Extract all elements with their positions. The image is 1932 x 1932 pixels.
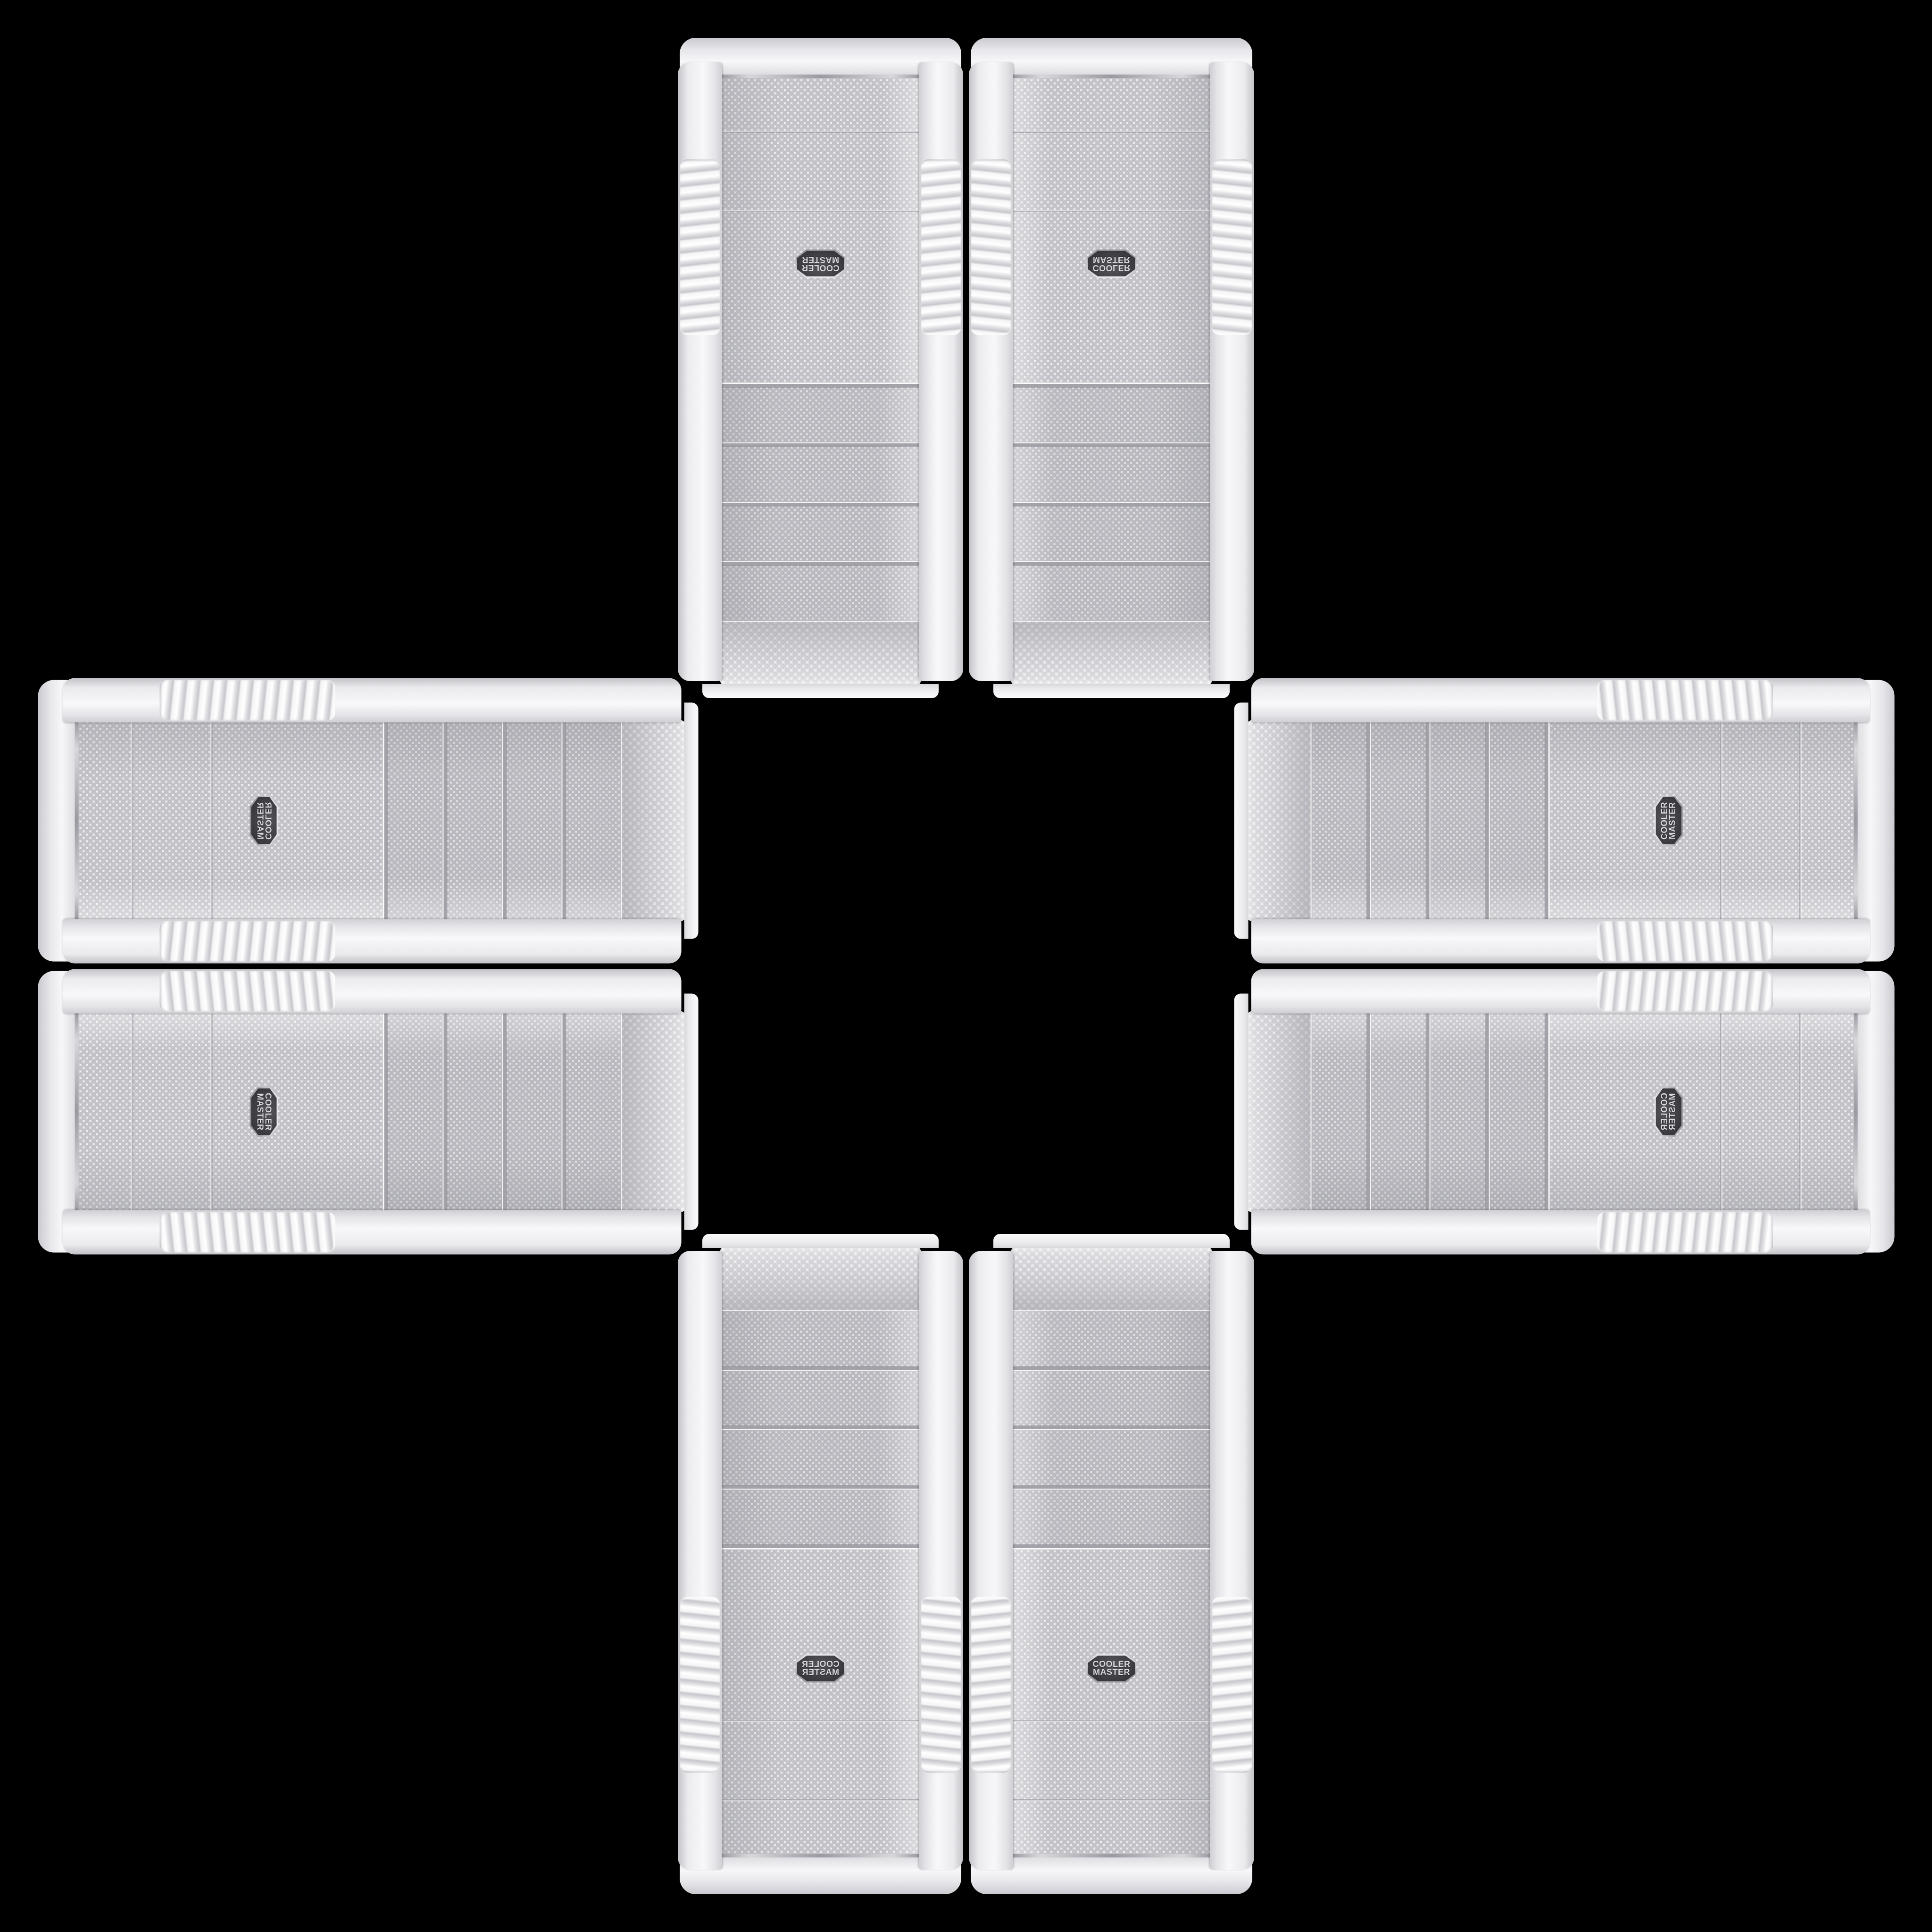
chrome-trim-bottom [1000,74,1223,78]
mesh-seam [1720,1008,1722,1215]
mesh-seam [717,1720,924,1722]
mesh-seam [131,1008,133,1215]
brand-line-1: COOLER [1660,802,1668,840]
drive-bay-cover [387,717,443,924]
grip-ribs [1597,971,1773,1011]
side-rail-right [1251,678,1870,722]
mesh-seam [717,131,924,133]
front-panel: COOLER MASTER [1008,1310,1215,1857]
drive-bay-cover [1429,1008,1486,1215]
mesh-seam [1008,131,1215,133]
front-panel: COOLER MASTER [717,75,924,622]
grip-ribs [1212,159,1252,335]
mesh-seam [1799,1008,1801,1215]
cooler-master-badge: COOLER MASTER [1654,796,1682,846]
brand-line-2: MASTER [1093,1668,1130,1676]
side-rail-right [1251,1210,1870,1254]
side-rail-left [62,969,681,1013]
grip-ribs [1597,1212,1773,1252]
drive-bay-cover [565,717,622,924]
brand-line-1: COOLER [264,802,272,840]
side-rail-right [678,1251,722,1870]
mesh-seam [1008,210,1215,212]
drive-bay-cover [1370,1008,1426,1215]
drive-bay-cover [1370,717,1426,924]
case-top-right: COOLER MASTER [969,38,1254,698]
case-bottom-left: COOLER MASTER [678,1234,963,1894]
drive-bay-cover [387,1008,443,1215]
mesh-seam [1008,1799,1215,1801]
case-right-bottom: COOLER MASTER [1234,969,1894,1254]
case-top-left: COOLER MASTER [678,38,963,698]
case-top-lip [684,993,698,1230]
front-panel: COOLER MASTER [75,717,622,924]
mesh-seam [1799,717,1801,924]
side-rail-left [969,1251,1013,1870]
brand-line-2: MASTER [1093,256,1130,264]
drive-bay-cover [1008,387,1215,443]
brand-line-2: MASTER [256,1093,264,1130]
cooler-master-badge-face: COOLER MASTER [797,1656,844,1681]
cooler-master-badge-face: COOLER MASTER [251,1088,276,1135]
brand-line-2: MASTER [256,802,264,839]
case-top-lip [684,702,698,939]
top-mesh-vent [1238,717,1310,924]
front-panel: COOLER MASTER [1008,75,1215,622]
side-rail-right [62,678,681,722]
drive-bay-cover [1008,1489,1215,1545]
grip-ribs [971,159,1011,335]
top-mesh-vent [622,1008,694,1215]
front-panel: COOLER MASTER [1310,717,1857,924]
brand-line-1: COOLER [264,1092,272,1130]
front-mesh: COOLER MASTER [75,717,384,924]
drive-bay-cover [1008,1310,1215,1367]
drive-bay-cover [1429,717,1486,924]
grip-ribs [1597,921,1773,961]
cooler-master-badge-face: COOLER MASTER [1088,1656,1135,1681]
side-rail-left [919,62,963,681]
cooler-master-badge: COOLER MASTER [796,1654,846,1682]
front-mesh: COOLER MASTER [1008,75,1215,384]
drive-bay-cover [1008,446,1215,503]
front-mesh: COOLER MASTER [717,1548,924,1857]
drive-bay-cover [446,1008,503,1215]
front-panel: COOLER MASTER [1310,1008,1857,1215]
cooler-master-badge: COOLER MASTER [250,796,278,846]
cooler-master-badge: COOLER MASTER [796,250,846,278]
drive-bay-cover [1489,717,1545,924]
drive-bay-cover [1008,1370,1215,1426]
cooler-master-badge-face: COOLER MASTER [251,797,276,844]
grip-ribs [1597,680,1773,720]
mesh-seam [717,210,924,212]
brand-line-1: COOLER [1660,1092,1668,1130]
drive-bay-cover [506,717,562,924]
side-rail-left [969,62,1013,681]
mesh-seam [210,1008,212,1215]
grip-ribs [1212,1597,1252,1773]
brand-line-2: MASTER [1668,1093,1676,1130]
drive-bay-cover [717,1310,924,1367]
brand-line-1: COOLER [1092,264,1130,272]
top-mesh-vent [1008,1238,1215,1310]
case-left-bottom: COOLER MASTER [38,969,698,1254]
drive-bay-cover [1310,717,1367,924]
front-mesh: COOLER MASTER [75,1008,384,1215]
side-rail-right [62,1210,681,1254]
drive-bay-cover [717,446,924,503]
grip-ribs [159,971,335,1011]
drive-bay-cover [1008,1429,1215,1486]
front-panel: COOLER MASTER [717,1310,924,1857]
mesh-seam [210,717,212,924]
top-mesh-vent [717,622,924,694]
front-panel: COOLER MASTER [75,1008,622,1215]
drive-bay-cover [1008,565,1215,622]
side-rail-left [1251,919,1870,963]
case-right-top: COOLER MASTER [1234,678,1894,963]
front-mesh: COOLER MASTER [1548,1008,1857,1215]
case-bottom-right: COOLER MASTER [969,1234,1254,1894]
case-left-top: COOLER MASTER [38,678,698,963]
grip-ribs [680,1597,720,1773]
brand-line-2: MASTER [802,1668,839,1676]
cooler-master-badge-face: COOLER MASTER [1656,797,1681,844]
cooler-master-badge: COOLER MASTER [1087,1654,1137,1682]
drive-bay-cover [717,1489,924,1545]
drive-bay-cover [1008,506,1215,562]
grip-ribs [971,1597,1011,1773]
cooler-master-badge: COOLER MASTER [250,1087,278,1137]
top-mesh-vent [717,1238,924,1310]
drive-bay-cover [717,387,924,443]
mesh-seam [131,717,133,924]
grip-ribs [680,159,720,335]
drive-bay-cover [446,717,503,924]
cooler-master-badge-face: COOLER MASTER [1656,1088,1681,1135]
grip-ribs [921,159,961,335]
front-mesh: COOLER MASTER [1008,1548,1215,1857]
drive-bay-cover [717,1370,924,1426]
side-rail-right [1210,62,1254,681]
drive-bay-cover [506,1008,562,1215]
drive-bay-cover [1489,1008,1545,1215]
cooler-master-badge-face: COOLER MASTER [797,251,844,276]
case-top-lip [702,684,939,698]
case-top-lip [1234,702,1248,939]
brand-line-1: COOLER [802,264,840,272]
side-rail-right [1210,1251,1254,1870]
chrome-trim-bottom [709,74,932,78]
drive-bay-cover [1310,1008,1367,1215]
grip-ribs [159,680,335,720]
grip-ribs [159,1212,335,1252]
drive-bay-cover [717,1429,924,1486]
cooler-master-badge: COOLER MASTER [1654,1087,1682,1137]
cooler-master-badge-face: COOLER MASTER [1088,251,1135,276]
case-top-lip [702,1234,939,1248]
mesh-seam [717,1799,924,1801]
drive-bay-cover [717,565,924,622]
case-top-lip [1234,993,1248,1230]
front-mesh: COOLER MASTER [717,75,924,384]
grip-ribs [159,921,335,961]
side-rail-left [919,1251,963,1870]
mesh-seam [1720,717,1722,924]
mesh-seam [1008,1720,1215,1722]
brand-line-2: MASTER [1668,802,1676,839]
case-top-lip [993,684,1230,698]
drive-bay-cover [565,1008,622,1215]
case-top-lip [993,1234,1230,1248]
scene: COOLER MASTER [0,0,1932,1932]
top-mesh-vent [1008,622,1215,694]
side-rail-right [678,62,722,681]
side-rail-left [62,919,681,963]
cooler-master-badge: COOLER MASTER [1087,250,1137,278]
top-mesh-vent [1238,1008,1310,1215]
top-mesh-vent [622,717,694,924]
side-rail-left [1251,969,1870,1013]
drive-bay-cover [717,506,924,562]
brand-line-2: MASTER [802,256,839,264]
front-mesh: COOLER MASTER [1548,717,1857,924]
grip-ribs [921,1597,961,1773]
